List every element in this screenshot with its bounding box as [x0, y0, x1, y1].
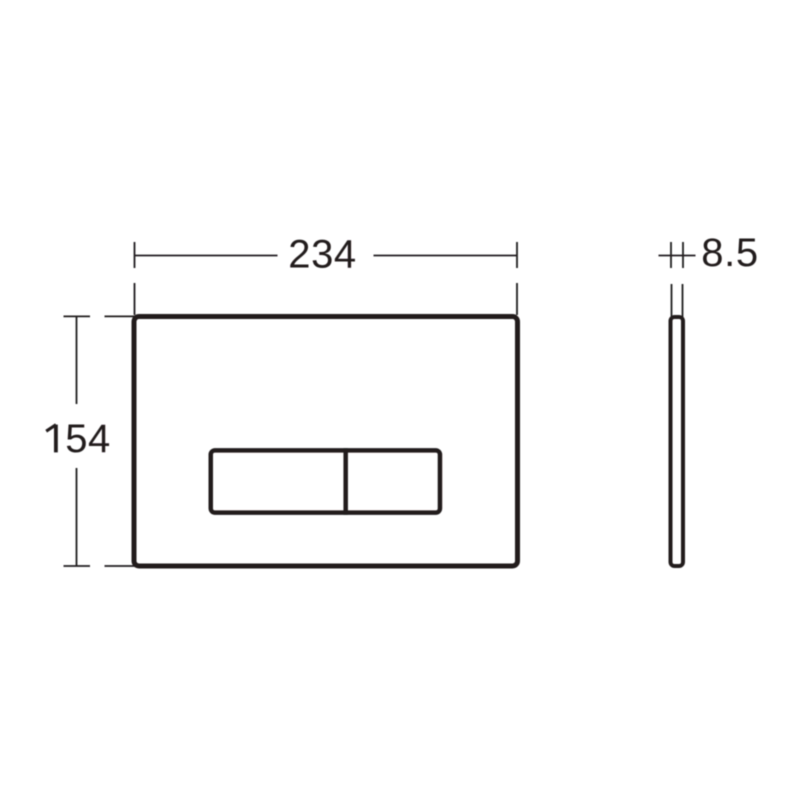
svg-text:234: 234 [288, 233, 357, 277]
svg-text:8.5: 8.5 [701, 231, 758, 275]
svg-text:54: 54 [65, 417, 111, 461]
